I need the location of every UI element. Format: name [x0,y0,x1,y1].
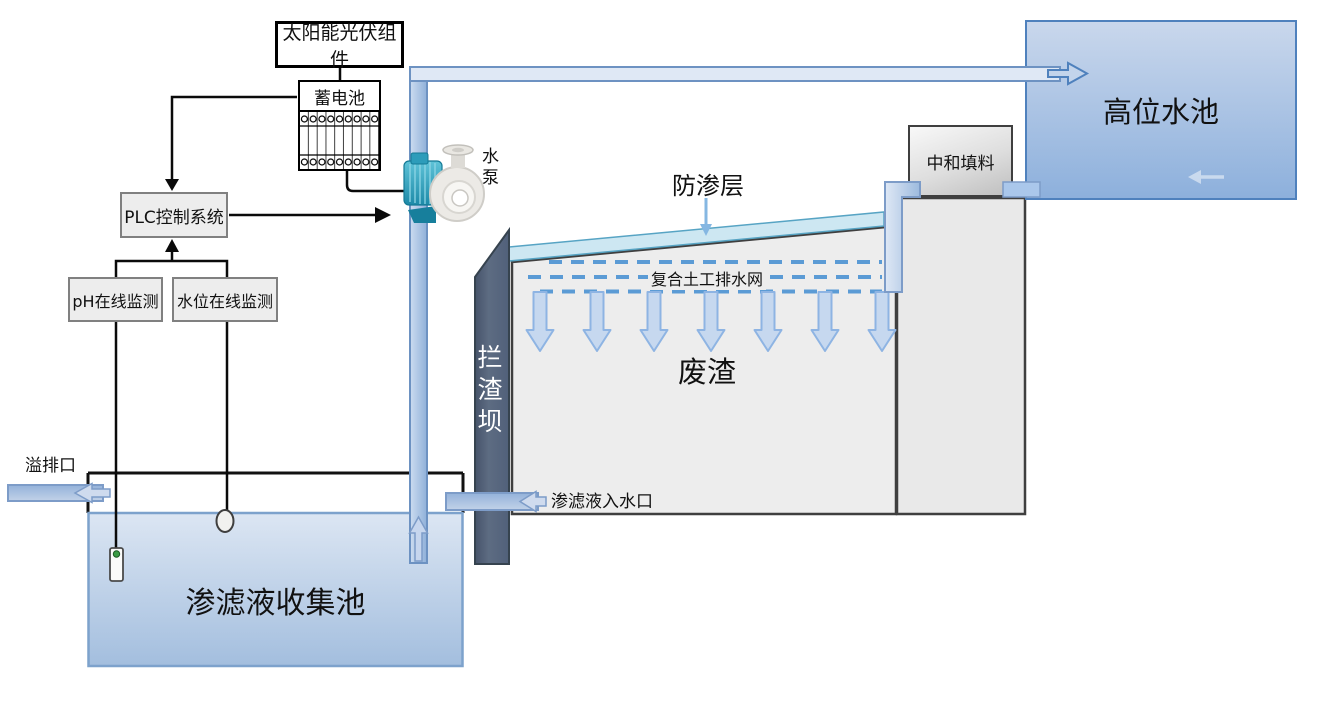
seepage-arrows [527,292,896,351]
leachate-pool-label: 渗滤液收集池 [88,578,463,622]
waste-label: 废渣 [678,349,736,391]
retaining-wall-shape [897,198,1025,514]
ph-probe [110,548,123,581]
battery-box: 蓄电池 [298,80,381,171]
pump-icon [404,145,484,223]
collection-tank-walls [88,473,463,513]
level-monitor-label: 水位在线监测 [177,288,273,312]
inlet-arrow-icon [520,492,546,512]
battery-label: 蓄电池 [300,82,379,112]
battery-cells-icon [300,112,379,169]
drainage-net-label: 复合土工排水网 [648,266,766,290]
suction-arrow-icon [410,517,428,561]
dam-label: 拦渣坝 [476,344,506,440]
ph-monitor-box: pH在线监测 [68,277,163,322]
high-level-pool: 高位水池 [1025,20,1297,200]
solar-pv-label: 太阳能光伏组件 [278,18,401,72]
solar-pv-box: 太阳能光伏组件 [275,21,404,68]
liner-pointer-arrow [700,198,712,236]
neutralizer-down-pipe [885,182,920,292]
plc-box: PLC控制系统 [120,192,228,238]
high-level-pool-label: 高位水池 [1103,89,1219,131]
overflow-outlet-label: 溢排口 [25,451,76,476]
diagram-canvas: 太阳能光伏组件 蓄电池 PLC控制系统 pH在线监测 水位在线监测 溢排口 水泵… [0,0,1329,710]
neutralizing-filler-box: 中和填料 [908,125,1013,197]
overflow-arrow-icon [75,484,110,503]
neutralizing-filler-label: 中和填料 [927,149,995,174]
riser-pipe [410,67,427,563]
liner-label: 防渗层 [672,166,744,201]
level-monitor-box: 水位在线监测 [172,277,278,322]
top-delivery-pipe [410,63,1087,84]
pump-label: 水泵 [482,147,504,190]
leachate-inlet-label: 渗滤液入水口 [551,487,653,512]
leachate-inlet-pipe [446,492,546,512]
plc-label: PLC控制系统 [124,203,224,228]
ph-monitor-label: pH在线监测 [72,288,158,312]
level-float [217,510,234,532]
overflow-pipe [8,484,110,503]
liner-shape [509,212,884,261]
